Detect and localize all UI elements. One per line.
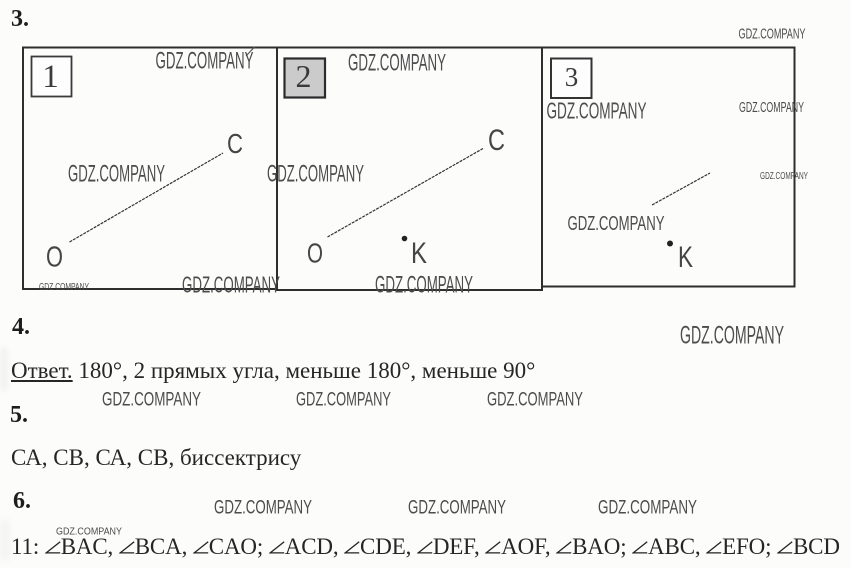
svg-text:GDZ.COMPANY: GDZ.COMPANY [68,161,165,188]
svg-text:C: C [227,128,243,159]
svg-text:GDZ.COMPANY: GDZ.COMPANY [739,100,804,116]
svg-text:GDZ.COMPANY: GDZ.COMPANY [296,390,391,411]
svg-text:1: 1 [42,59,59,95]
svg-text:GDZ.COMPANY: GDZ.COMPANY [487,390,583,411]
svg-text:K: K [411,237,427,270]
svg-text:2: 2 [296,58,312,94]
svg-text:GDZ.COMPANY: GDZ.COMPANY [568,213,665,235]
svg-text:GDZ.COMPANY: GDZ.COMPANY [408,498,506,519]
svg-text:K: K [678,241,693,274]
svg-text:GDZ.COMPANY: GDZ.COMPANY [39,282,89,293]
svg-text:GDZ.COMPANY: GDZ.COMPANY [739,26,806,42]
svg-text:O: O [307,238,323,269]
svg-text:GDZ.COMPANY: GDZ.COMPANY [760,171,808,182]
svg-text:GDZ.COMPANY: GDZ.COMPANY [547,98,647,124]
svg-text:GDZ.COMPANY: GDZ.COMPANY [267,161,364,188]
svg-text:GDZ.COMPANY: GDZ.COMPANY [102,390,201,411]
svg-text:O: O [46,242,63,274]
svg-text:GDZ.COMPANY: GDZ.COMPANY [214,498,312,519]
svg-text:GDZ.COMPANY: GDZ.COMPANY [680,322,784,350]
svg-text:GDZ.COMPANY: GDZ.COMPANY [348,50,446,77]
svg-text:GDZ.COMPANY: GDZ.COMPANY [182,272,280,298]
svg-text:GDZ.COMPANY: GDZ.COMPANY [375,272,473,299]
svg-text:GDZ.COMPANY: GDZ.COMPANY [598,498,697,519]
svg-text:GDZ.COMPANY: GDZ.COMPANY [156,48,254,75]
svg-text:C: C [488,124,505,157]
svg-text:3: 3 [565,62,579,92]
